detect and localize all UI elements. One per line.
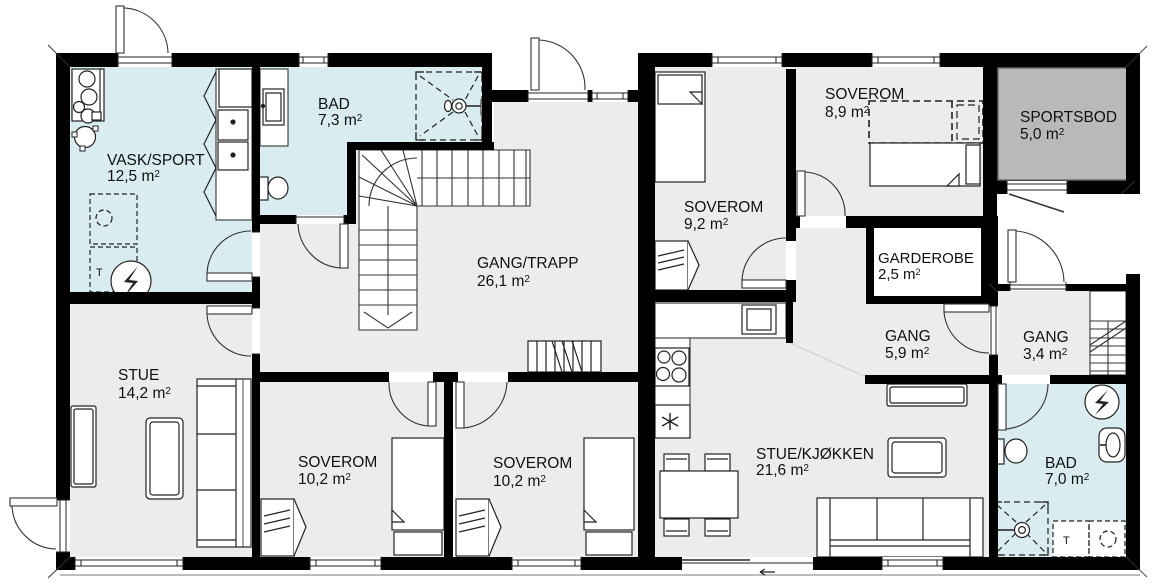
svg-text:14,2 m2: 14,2 m2: [118, 385, 171, 402]
svg-text:9,2 m2: 9,2 m2: [684, 216, 729, 233]
svg-text:10,2 m2: 10,2 m2: [298, 471, 351, 488]
svg-text:T: T: [1063, 535, 1070, 547]
svg-text:STUE/KJØKKEN: STUE/KJØKKEN: [756, 446, 874, 463]
svg-text:BAD: BAD: [1045, 455, 1077, 472]
svg-text:SPORTSBOD: SPORTSBOD: [1020, 109, 1117, 126]
svg-text:VASK/SPORT: VASK/SPORT: [107, 152, 205, 169]
svg-text:GARDEROBE: GARDEROBE: [878, 250, 974, 267]
svg-text:7,0 m2: 7,0 m2: [1045, 471, 1090, 488]
svg-text:3,4 m2: 3,4 m2: [1023, 346, 1068, 363]
svg-text:SOVEROM: SOVEROM: [825, 86, 904, 103]
svg-text:5,9 m2: 5,9 m2: [885, 345, 930, 362]
svg-text:2,5 m2: 2,5 m2: [878, 266, 921, 283]
svg-text:GANG: GANG: [885, 328, 931, 345]
svg-text:T: T: [96, 267, 103, 279]
svg-text:GANG: GANG: [1023, 329, 1069, 346]
svg-text:SOVEROM: SOVEROM: [684, 199, 763, 216]
svg-text:GANG/TRAPP: GANG/TRAPP: [477, 255, 579, 272]
svg-text:10,2 m2: 10,2 m2: [493, 473, 546, 490]
svg-text:26,1 m2: 26,1 m2: [477, 273, 530, 290]
svg-text:8,9 m2: 8,9 m2: [825, 104, 870, 121]
svg-text:SOVEROM: SOVEROM: [493, 455, 572, 472]
svg-text:BAD: BAD: [318, 96, 350, 113]
svg-text:7,3 m2: 7,3 m2: [318, 112, 363, 129]
svg-text:21,6 m2: 21,6 m2: [756, 462, 809, 479]
svg-text:12,5 m2: 12,5 m2: [107, 168, 160, 185]
svg-text:STUE: STUE: [118, 367, 159, 384]
svg-text:5,0 m2: 5,0 m2: [1020, 126, 1065, 143]
svg-text:SOVEROM: SOVEROM: [298, 454, 377, 471]
